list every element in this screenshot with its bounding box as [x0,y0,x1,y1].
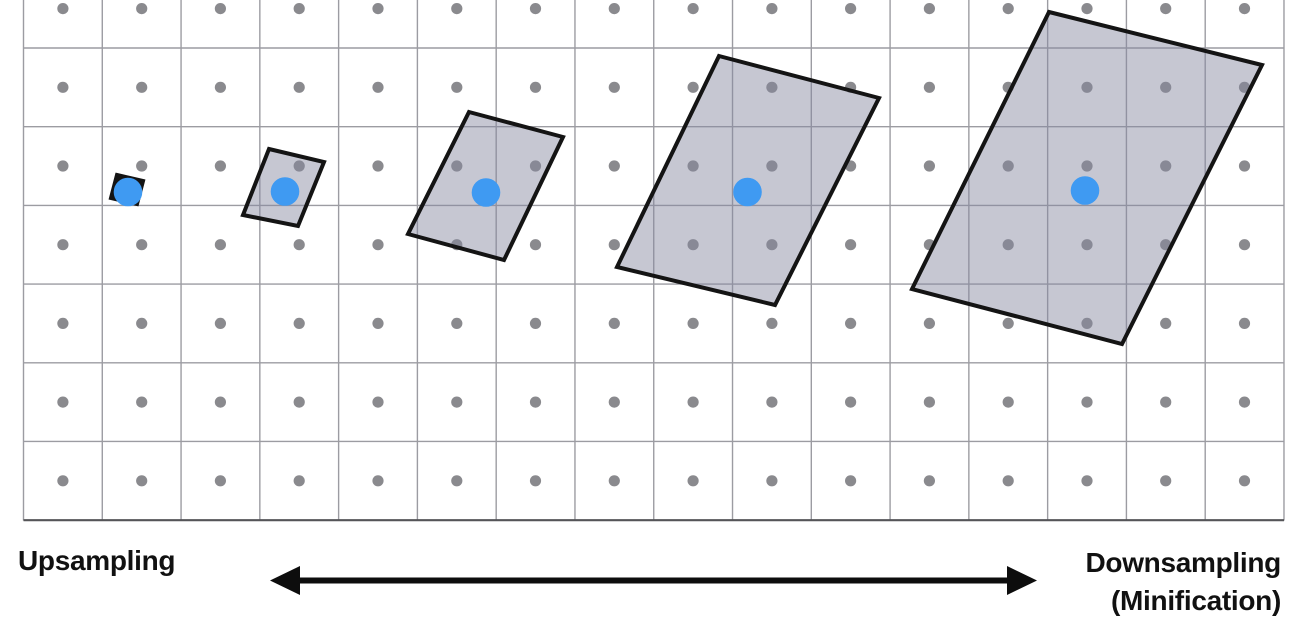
texel-dot [1239,160,1250,171]
texel-dot [766,3,777,14]
texel-dot [845,239,856,250]
texel-dot [57,239,68,250]
texel-dot [609,3,620,14]
texel-dot [845,318,856,329]
texel-dot [451,397,462,408]
texel-dot [372,82,383,93]
scale-arrow-left-head [270,566,300,595]
texel-dot [1239,475,1250,486]
texel-dot [294,3,305,14]
texel-dot [924,397,935,408]
texel-grid-canvas [0,0,1305,623]
texel-dot [451,82,462,93]
texel-dot [530,475,541,486]
texel-dot [57,318,68,329]
sample-point-dot [114,178,143,207]
texel-dot [215,397,226,408]
texel-dot [294,475,305,486]
texel-dot [766,318,777,329]
texel-dot [136,3,147,14]
texel-dot [609,82,620,93]
texel-dot [1239,318,1250,329]
texel-dot [1081,3,1092,14]
sample-point-dot [733,178,762,207]
texel-dot [215,239,226,250]
texel-dot [845,3,856,14]
texel-dot [372,475,383,486]
texel-dot [57,475,68,486]
sample-point-dot [472,178,501,207]
texel-dot [766,397,777,408]
texel-dot [1003,3,1014,14]
texel-dot [609,475,620,486]
texel-dot [215,3,226,14]
scale-arrow-right-head [1007,566,1037,595]
texel-dot [57,160,68,171]
texel-dot [688,3,699,14]
texel-dot [766,475,777,486]
texel-dot [609,239,620,250]
texel-dot [845,397,856,408]
texel-dot [136,397,147,408]
texel-dot [294,318,305,329]
texel-dot [530,318,541,329]
texel-dot [215,160,226,171]
texel-dot [372,239,383,250]
sample-point-dot [271,177,300,206]
sample-point-dot [1071,176,1100,205]
texel-dot [924,3,935,14]
texel-dot [451,475,462,486]
texel-dot [924,82,935,93]
texel-dot [609,160,620,171]
texel-dot [136,318,147,329]
texel-dot [530,239,541,250]
texel-dot [136,475,147,486]
texel-dot [1081,475,1092,486]
texel-dot [136,160,147,171]
texel-dot [215,318,226,329]
texel-dot [294,82,305,93]
texel-dot [372,318,383,329]
texel-dot [1003,475,1014,486]
texel-dot [136,239,147,250]
texel-dot [1160,3,1171,14]
texel-dot [451,318,462,329]
texel-dot [1239,239,1250,250]
texel-dot [530,82,541,93]
texel-dot [1081,397,1092,408]
texel-dot [688,475,699,486]
texel-dot [215,475,226,486]
downsampling-label-line1: Downsampling [1085,544,1281,582]
texel-dot [688,397,699,408]
texel-dot [136,82,147,93]
texel-dot [57,3,68,14]
texel-dot [1160,318,1171,329]
minification-label-line2: (Minification) [1085,582,1281,620]
texel-dot [924,160,935,171]
texel-dot [924,318,935,329]
upsampling-label: Upsampling [18,545,175,577]
downsampling-label: Downsampling (Minification) [1085,544,1281,620]
texel-dot [688,318,699,329]
texel-dot [1239,397,1250,408]
texel-dot [57,82,68,93]
texel-dot [215,82,226,93]
texel-dot [688,82,699,93]
texel-dot [1003,397,1014,408]
texel-dot [609,318,620,329]
texel-dot [924,475,935,486]
texel-dot [372,3,383,14]
texel-dot [57,397,68,408]
texel-dot [451,3,462,14]
scale-arrow-shaft [294,578,1013,584]
texel-dot [845,475,856,486]
texel-dot [1160,475,1171,486]
texel-dot [1239,3,1250,14]
texel-dot [372,397,383,408]
texel-dot [372,160,383,171]
texel-dot [294,239,305,250]
texel-dot [530,3,541,14]
texel-dot [530,397,541,408]
texel-dot [609,397,620,408]
texel-dot [1160,397,1171,408]
texel-dot [1003,318,1014,329]
sampling-diagram: Upsampling Downsampling (Minification) [0,0,1305,623]
texel-dot [294,397,305,408]
